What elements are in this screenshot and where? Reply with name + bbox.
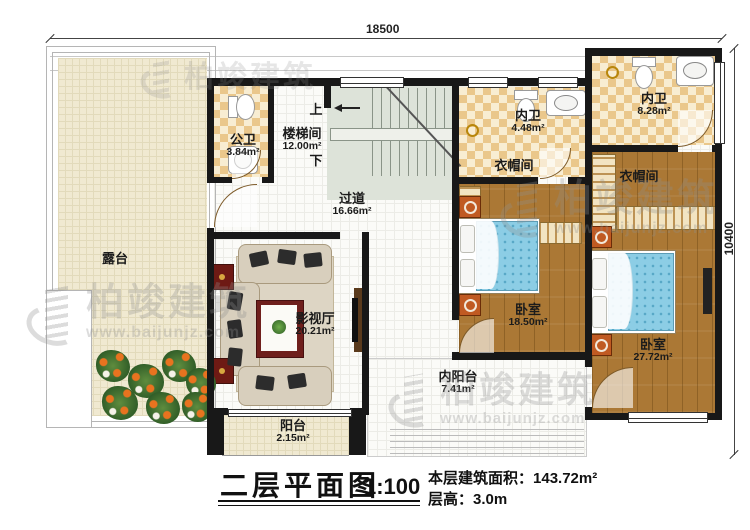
sofa-bottom xyxy=(238,366,332,406)
toilet-bowl xyxy=(635,65,653,89)
wall-left-lower xyxy=(207,228,214,415)
wardrobe-right-horizontal xyxy=(616,206,716,230)
room-label-balcony: 阳台 2.15m² xyxy=(276,419,309,445)
title-underline-thin xyxy=(218,505,420,506)
room-area: 16.66m² xyxy=(332,206,371,218)
potted-plant xyxy=(272,320,286,334)
window-stairwell xyxy=(340,77,404,88)
terrace-step xyxy=(46,290,92,428)
stair-up-text: 上 xyxy=(309,103,322,117)
room-area: 12.00m² xyxy=(282,141,321,153)
window-ensuite-small-a xyxy=(468,77,508,88)
sofa-cushion xyxy=(227,319,243,339)
room-name: 衣帽间 xyxy=(494,159,533,173)
wall-top-right xyxy=(585,48,722,56)
room-label-ensuite-large: 内卫 8.28m² xyxy=(637,92,670,118)
tv-screen xyxy=(352,298,358,342)
room-name: 内阳台 xyxy=(438,370,477,384)
stair-arrowhead-icon xyxy=(330,104,342,112)
shower-head-icon xyxy=(466,124,479,137)
sink-basin xyxy=(554,95,578,111)
shower-head-icon xyxy=(606,66,619,79)
wall-left-upper xyxy=(207,78,214,180)
wall-public-bath-right xyxy=(268,86,274,177)
room-area: 20.21m² xyxy=(295,326,334,338)
wall-public-bath-bottom-b xyxy=(262,177,274,183)
sofa-cushion xyxy=(255,375,275,391)
room-area: 7.41m² xyxy=(438,384,477,396)
nightstand xyxy=(590,226,612,248)
wall-theater-bottom-b xyxy=(350,408,369,415)
window-ensuite-large xyxy=(714,62,725,144)
floor-height-label: 层高： xyxy=(428,491,473,508)
plan-scale: 1:100 xyxy=(364,474,420,500)
pillow xyxy=(460,259,475,287)
pillow xyxy=(460,225,475,253)
room-label-stairwell: 楼梯间 12.00m² xyxy=(282,127,321,153)
room-area: 18.50m² xyxy=(508,317,547,329)
room-name: 楼梯间 xyxy=(282,127,321,141)
flower-plant xyxy=(96,350,130,382)
room-label-closet-right: 衣帽间 xyxy=(619,170,658,184)
dimension-width: 18500 xyxy=(366,22,399,36)
dimension-depth: 10400 xyxy=(722,222,736,255)
bed-right xyxy=(588,250,676,334)
window-ensuite-small-b xyxy=(538,77,578,88)
quilt xyxy=(608,253,633,329)
wall-corridor-right xyxy=(452,78,459,320)
room-label-hallway: 过道 16.66m² xyxy=(332,192,371,218)
floor-area-label: 本层建筑面积： xyxy=(428,470,533,487)
flower-plant xyxy=(146,392,180,424)
balcony-pier-right xyxy=(349,415,366,455)
room-label-bedroom-right: 卧室 27.72m² xyxy=(633,338,672,364)
room-name: 衣帽间 xyxy=(619,170,658,184)
room-name: 内卫 xyxy=(511,109,544,123)
room-name: 阳台 xyxy=(276,419,309,433)
bed-left xyxy=(456,218,540,294)
wall-ensuite-large-bottom-a xyxy=(585,145,678,152)
room-name: 公卫 xyxy=(226,133,259,147)
room-area: 2.15m² xyxy=(276,433,309,445)
wall-bedroom-right-bottom-b xyxy=(706,413,722,420)
room-label-closet-left: 衣帽间 xyxy=(494,159,533,173)
plan-title: 二层平面图 xyxy=(220,464,380,504)
room-area: 27.72m² xyxy=(633,352,672,364)
room-label-theater: 影视厅 20.21m² xyxy=(295,312,334,338)
nightstand xyxy=(459,294,481,316)
sink-basin xyxy=(683,62,707,79)
room-name: 露台 xyxy=(102,252,128,266)
room-label-ensuite-small: 内卫 4.48m² xyxy=(511,109,544,135)
wall-bedroom-left-bottom xyxy=(452,352,592,360)
room-label-terrace: 露台 xyxy=(102,252,128,266)
flower-plant xyxy=(102,386,138,420)
stair-treads-upper xyxy=(372,88,452,128)
pillow xyxy=(592,258,607,290)
balcony-pier-left xyxy=(207,415,224,455)
sofa-cushion xyxy=(227,347,243,366)
room-name: 影视厅 xyxy=(295,312,334,326)
room-name: 内卫 xyxy=(637,92,670,106)
title-underline-thick xyxy=(218,500,420,502)
window-theater-sliding xyxy=(228,409,352,417)
wardrobe-right-vertical xyxy=(592,154,616,232)
room-name: 过道 xyxy=(332,192,371,206)
floor-height-value: 3.0m xyxy=(473,491,507,508)
floor-plan: 露台 公卫 3.84m² 楼梯间 12.00m² 上 下 过道 16.66m² … xyxy=(0,0,750,530)
toilet-bowl xyxy=(236,94,255,120)
wall-bedroom-right-bottom-a xyxy=(585,413,628,420)
wall-mid-vertical-upper xyxy=(585,48,592,367)
stair-up-label: 上 xyxy=(309,103,322,117)
floor-area-info: 本层建筑面积：143.72m² xyxy=(428,467,597,488)
window-bedroom-right xyxy=(628,412,708,423)
inner-balcony-railing xyxy=(390,424,584,454)
room-label-public-bath: 公卫 3.84m² xyxy=(226,133,259,159)
wall-ensuite-small-bottom-a xyxy=(452,177,538,184)
wall-public-bath-bottom-a xyxy=(207,177,232,183)
room-area: 4.48m² xyxy=(511,123,544,135)
room-name: 卧室 xyxy=(633,338,672,352)
room-name: 卧室 xyxy=(508,303,547,317)
sofa-cushion xyxy=(287,373,307,390)
wall-stair-stub xyxy=(324,78,331,108)
sofa-cushion xyxy=(277,249,297,265)
floor-area-value: 143.72m² xyxy=(533,470,597,487)
room-area: 8.28m² xyxy=(637,106,670,118)
wall-theater-top xyxy=(214,232,340,239)
stair-down-text: 下 xyxy=(309,154,322,168)
room-label-inner-balcony: 内阳台 7.41m² xyxy=(438,370,477,396)
bedroom-tv xyxy=(703,268,712,314)
nightstand xyxy=(459,196,481,218)
pillow xyxy=(592,296,607,328)
quilt xyxy=(476,221,499,289)
wall-theater-bottom-a xyxy=(207,408,228,415)
wall-theater-right xyxy=(362,232,369,408)
floor-height-info: 层高：3.0m xyxy=(428,488,507,509)
room-area: 3.84m² xyxy=(226,147,259,159)
stair-down-label: 下 xyxy=(309,154,322,168)
nightstand xyxy=(590,334,612,356)
dimension-line-top xyxy=(50,38,722,39)
sofa-cushion xyxy=(303,252,322,268)
room-label-bedroom-left: 卧室 18.50m² xyxy=(508,303,547,329)
